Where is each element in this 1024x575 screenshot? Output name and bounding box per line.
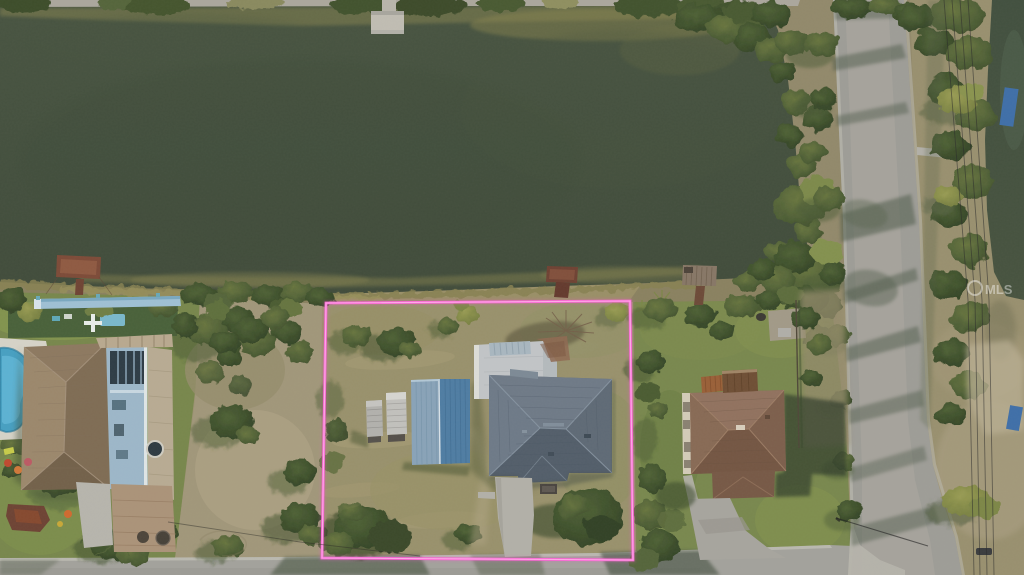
svg-text:MLS: MLS: [985, 282, 1013, 297]
